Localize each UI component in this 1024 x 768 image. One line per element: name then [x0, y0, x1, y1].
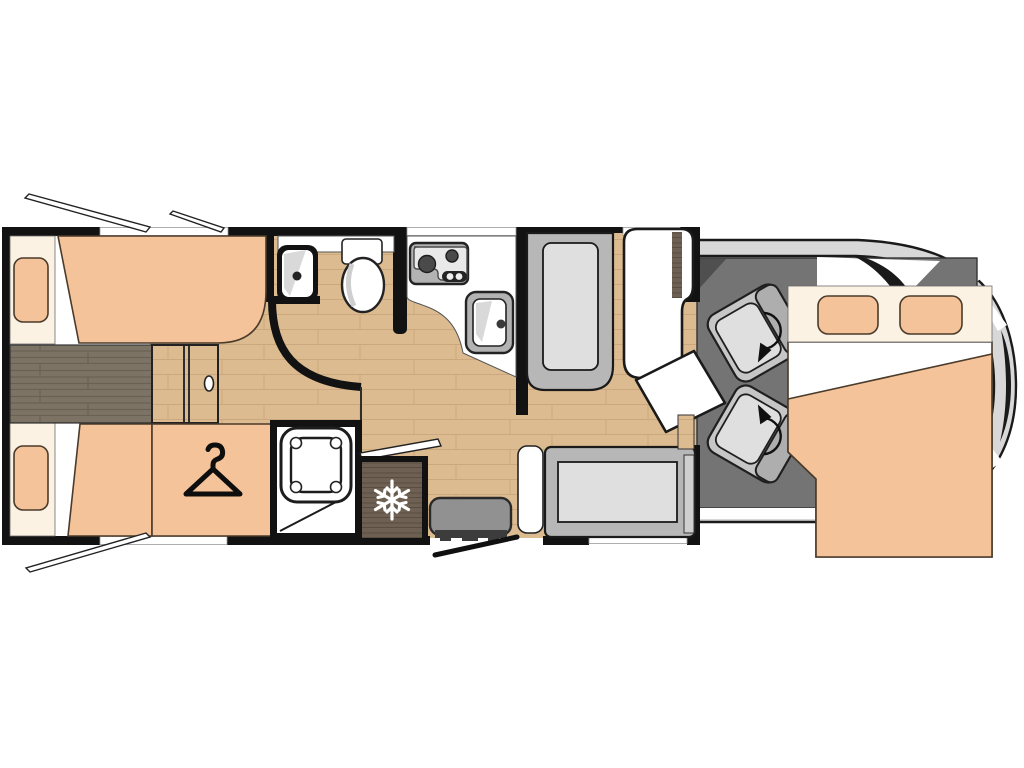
shower-jet — [291, 482, 302, 493]
hob-knob — [447, 273, 454, 280]
sofa-armrest — [518, 446, 543, 533]
drop-down-bed — [788, 286, 992, 557]
sink-drain — [497, 320, 506, 329]
bed-pillow-right — [900, 296, 962, 334]
corner-washbasin — [277, 245, 318, 302]
sideboard-bottom — [678, 415, 694, 449]
burner-small — [446, 250, 458, 262]
washroom-bedroom-wall — [266, 232, 274, 302]
top-wall-b — [228, 227, 407, 236]
basin-faucet — [293, 272, 302, 281]
shower-room — [270, 420, 362, 540]
single-bed-top — [58, 236, 266, 343]
window-flap-rear-top — [25, 194, 150, 232]
bed-pillow-left — [818, 296, 878, 334]
center-walkway — [10, 345, 152, 423]
bed-step — [152, 345, 218, 423]
shower-jet — [291, 438, 302, 449]
step-foot — [440, 537, 451, 541]
hob-knob — [456, 273, 463, 280]
entry — [430, 498, 517, 555]
two-burner-hob — [410, 243, 468, 284]
window-rear-top — [100, 228, 228, 236]
pillow-top-bed — [14, 258, 48, 322]
hob-controls — [442, 271, 467, 282]
bench-cushion — [543, 243, 598, 370]
refrigerator — [356, 456, 428, 543]
sofa-cushion — [558, 462, 677, 522]
pillow-bottom-bed — [14, 446, 48, 510]
window-kitchen — [407, 228, 516, 236]
bed-step-handle — [205, 376, 214, 391]
sideboard-top — [672, 232, 682, 298]
shower-jet — [331, 438, 342, 449]
single-bed-bottom — [68, 424, 152, 536]
floorplan-canvas — [0, 0, 1024, 768]
entry-step-base — [435, 530, 507, 538]
top-wall-a — [2, 227, 100, 236]
entry-step — [430, 498, 511, 535]
washroom-kitchen-wall — [393, 228, 407, 334]
kitchen-sink — [466, 292, 513, 353]
shower-jet — [331, 482, 342, 493]
motorhome-floorplan — [0, 0, 1024, 768]
rear-wall — [2, 227, 10, 545]
burner-large — [419, 256, 436, 273]
wardrobe — [152, 424, 272, 536]
entry-cabinet — [684, 455, 694, 533]
bottom-wall-a — [2, 536, 100, 545]
step-foot — [462, 537, 478, 541]
